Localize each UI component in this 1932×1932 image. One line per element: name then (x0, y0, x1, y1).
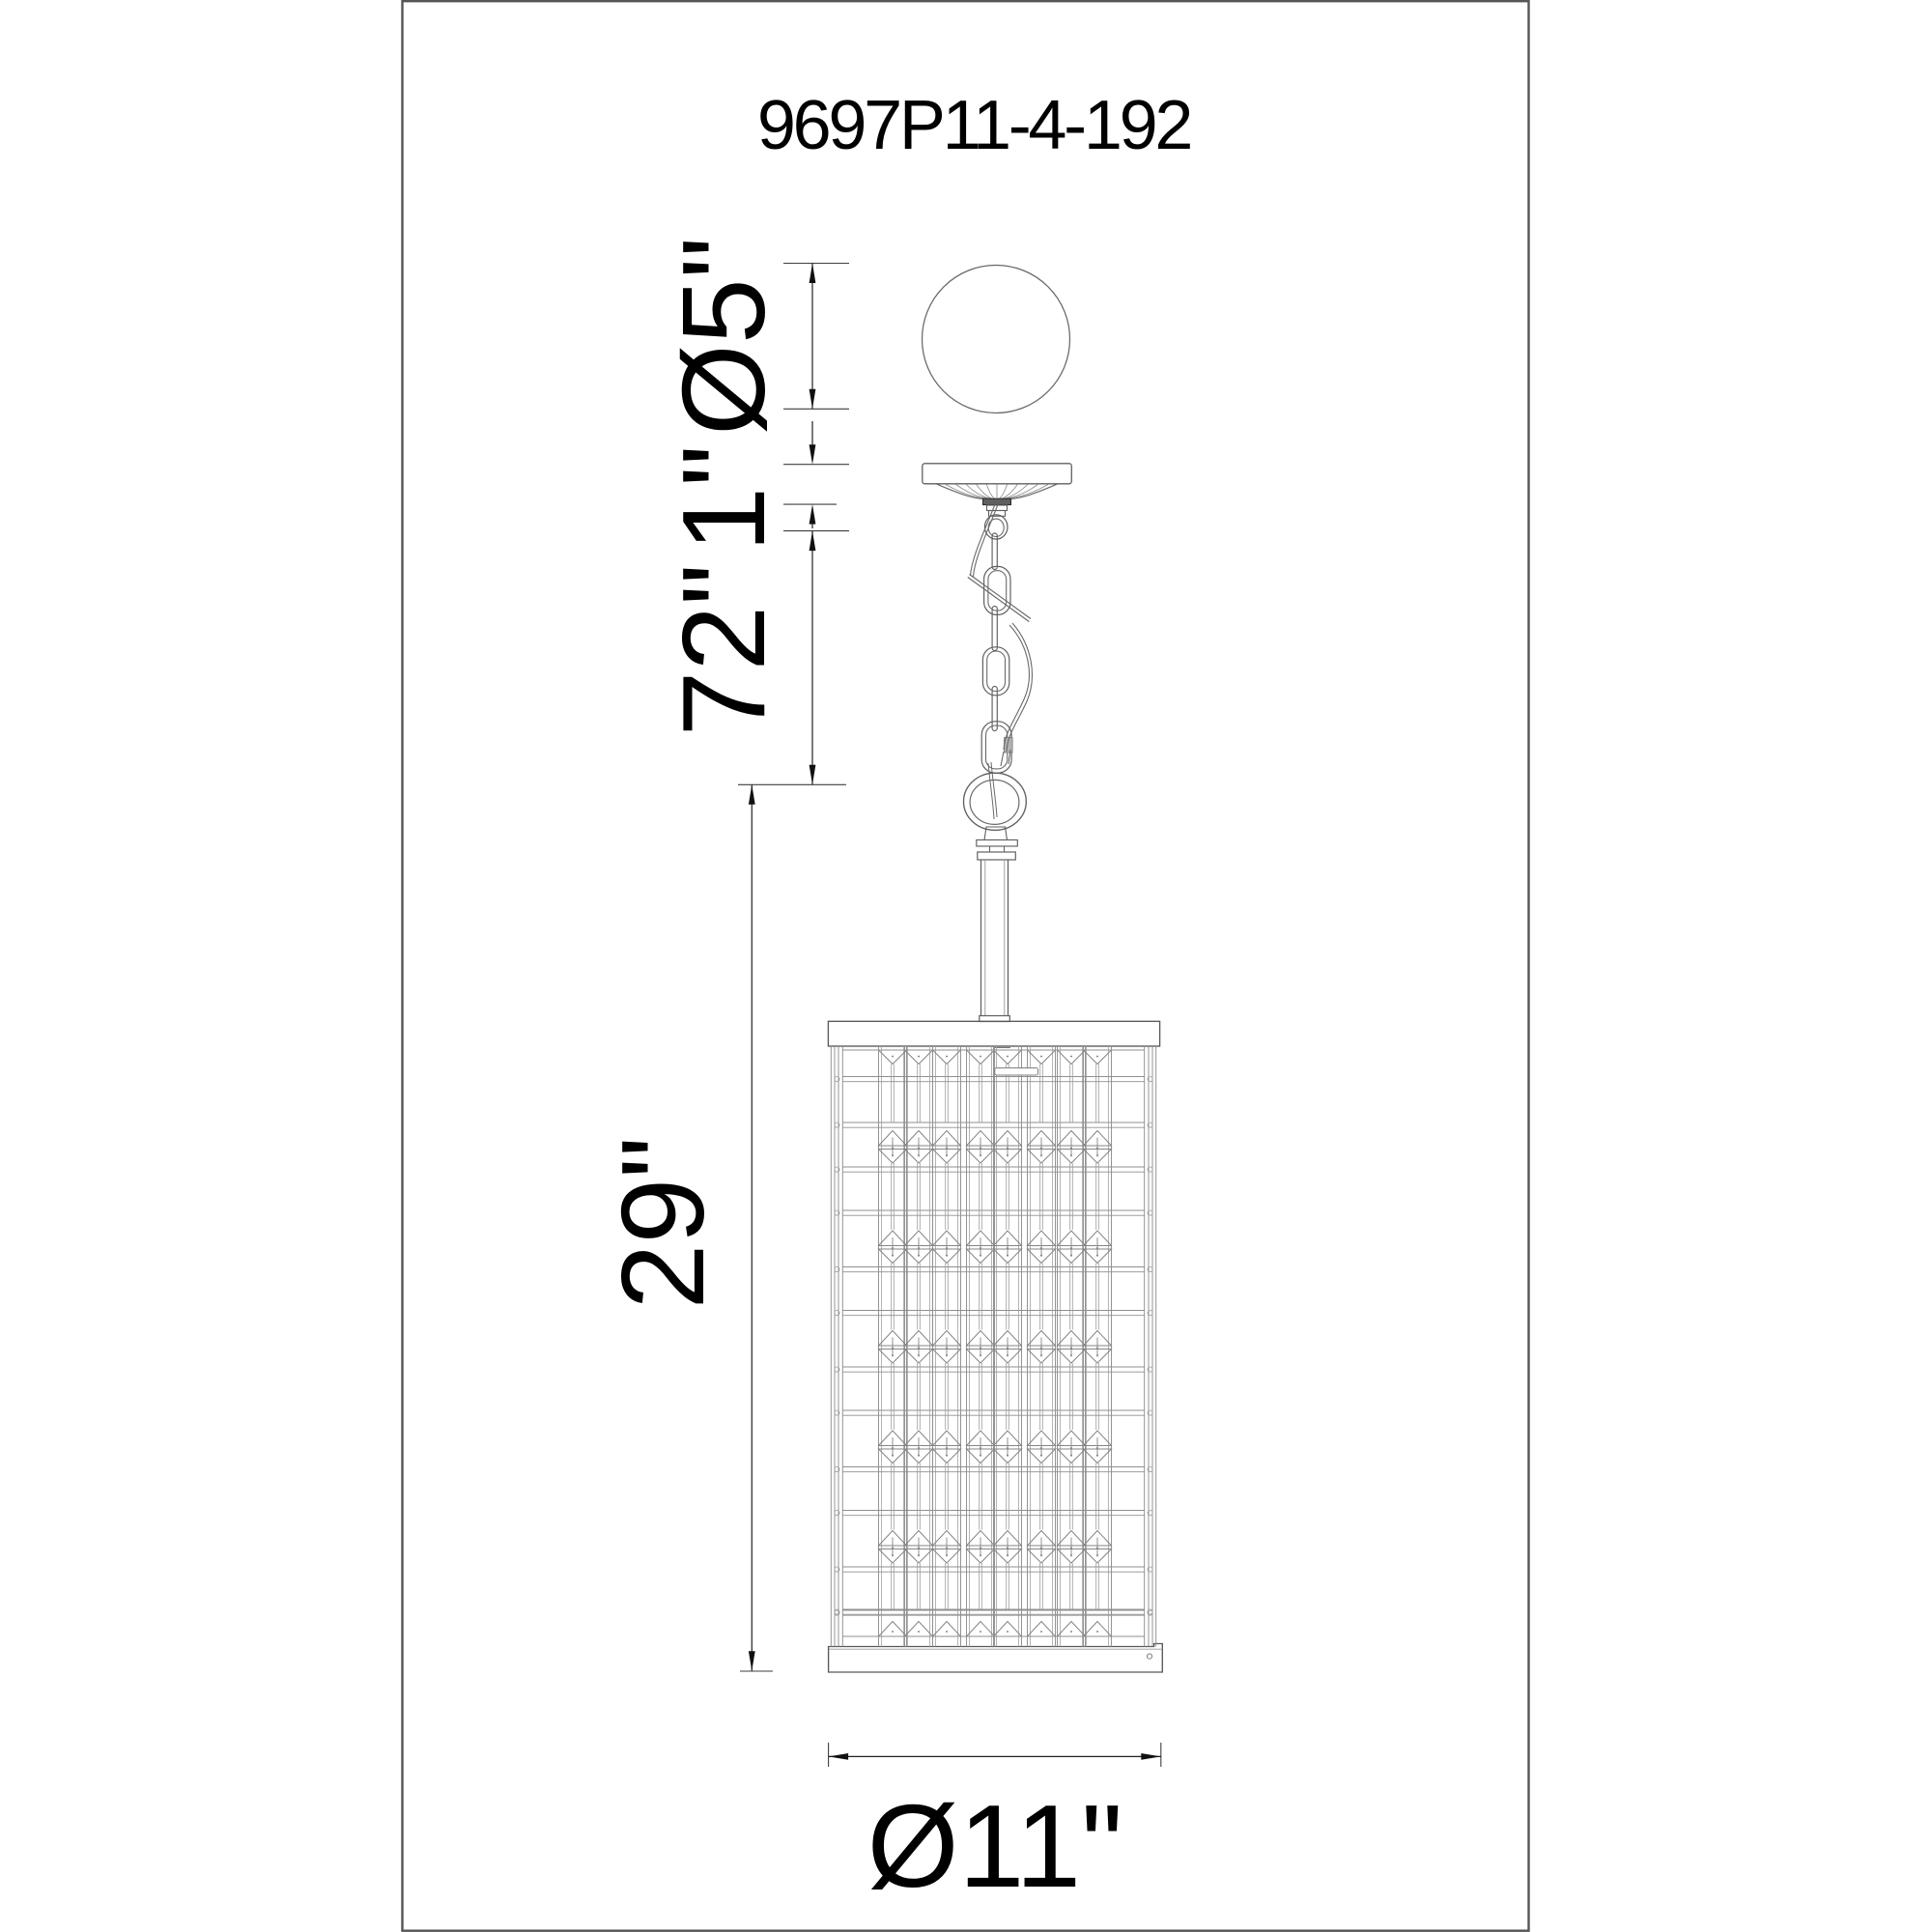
svg-text:1": 1" (658, 444, 789, 552)
svg-text:Ø5": Ø5" (658, 237, 789, 436)
svg-text:29": 29" (597, 1136, 728, 1309)
svg-text:72": 72" (658, 563, 789, 736)
svg-text:9697P11-4-192: 9697P11-4-192 (757, 87, 1190, 164)
svg-text:Ø11": Ø11" (867, 1780, 1123, 1912)
